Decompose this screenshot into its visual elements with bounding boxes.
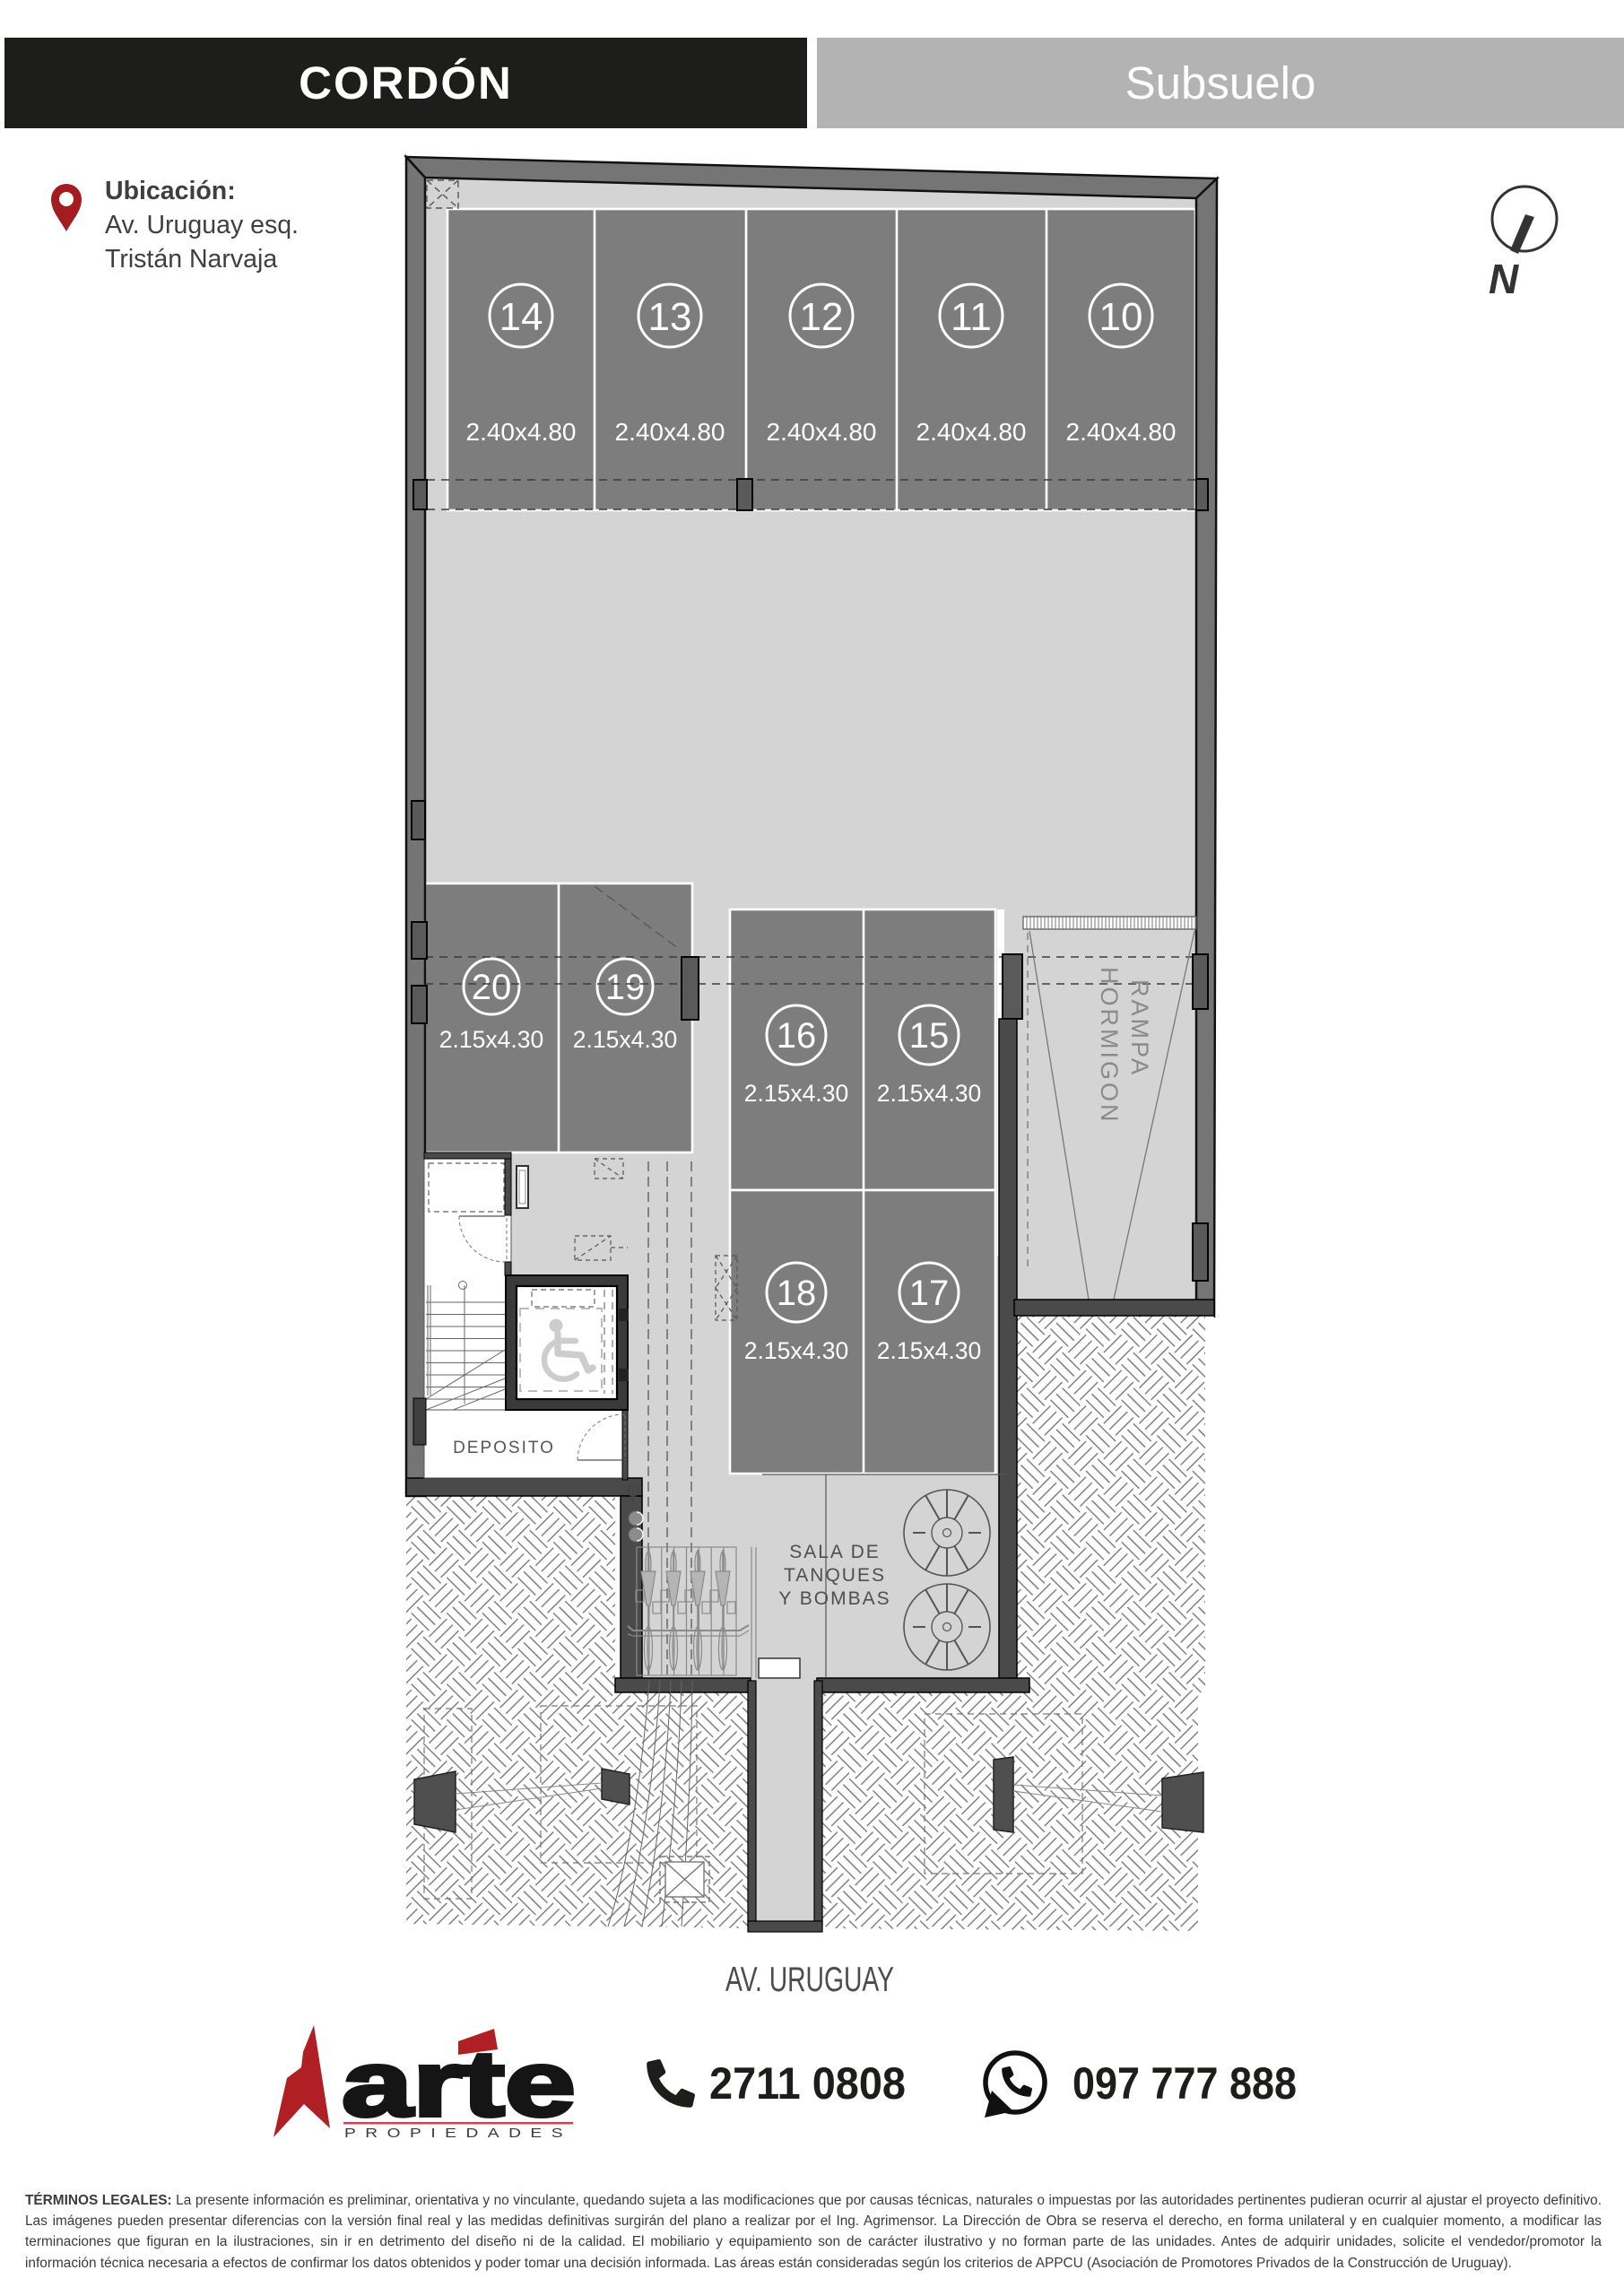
svg-text:2.15x4.30: 2.15x4.30 (877, 1080, 981, 1107)
svg-text:18: 18 (777, 1274, 817, 1313)
svg-text:PROPIEDADES: PROPIEDADES (344, 2126, 572, 2141)
svg-text:20: 20 (472, 968, 512, 1007)
svg-text:2.40x4.80: 2.40x4.80 (1066, 418, 1177, 446)
svg-text:AV. URUGUAY: AV. URUGUAY (725, 1961, 894, 1999)
svg-text:2.40x4.80: 2.40x4.80 (767, 418, 877, 446)
svg-text:19: 19 (605, 968, 646, 1007)
svg-text:2.40x4.80: 2.40x4.80 (615, 418, 725, 446)
svg-text:TANQUES: TANQUES (784, 1565, 886, 1586)
svg-text:16: 16 (777, 1016, 817, 1056)
svg-text:2.15x4.30: 2.15x4.30 (744, 1337, 848, 1364)
svg-text:14: 14 (499, 295, 543, 339)
svg-text:2.15x4.30: 2.15x4.30 (573, 1026, 677, 1053)
svg-text:2.15x4.30: 2.15x4.30 (877, 1337, 981, 1364)
svg-text:12: 12 (800, 295, 844, 339)
svg-text:10: 10 (1099, 295, 1143, 339)
svg-text:SALA DE: SALA DE (789, 1542, 881, 1562)
svg-text:11: 11 (951, 295, 992, 339)
svg-text:13: 13 (648, 295, 692, 339)
svg-text:15: 15 (909, 1016, 950, 1056)
svg-text:DEPOSITO: DEPOSITO (453, 1439, 555, 1457)
svg-text:RAMPA: RAMPA (1126, 979, 1153, 1077)
svg-text:2711 0808: 2711 0808 (709, 2058, 906, 2109)
svg-text:2.40x4.80: 2.40x4.80 (916, 418, 1027, 446)
svg-text:17: 17 (909, 1274, 950, 1313)
svg-text:2.15x4.30: 2.15x4.30 (744, 1080, 848, 1107)
svg-text:2.15x4.30: 2.15x4.30 (439, 1026, 543, 1053)
svg-text:HORMIGON: HORMIGON (1096, 967, 1123, 1125)
svg-text:N: N (1489, 256, 1519, 302)
svg-text:Y BOMBAS: Y BOMBAS (778, 1588, 890, 1609)
svg-text:097 777 888: 097 777 888 (1073, 2058, 1297, 2109)
svg-text:2.40x4.80: 2.40x4.80 (466, 418, 577, 446)
